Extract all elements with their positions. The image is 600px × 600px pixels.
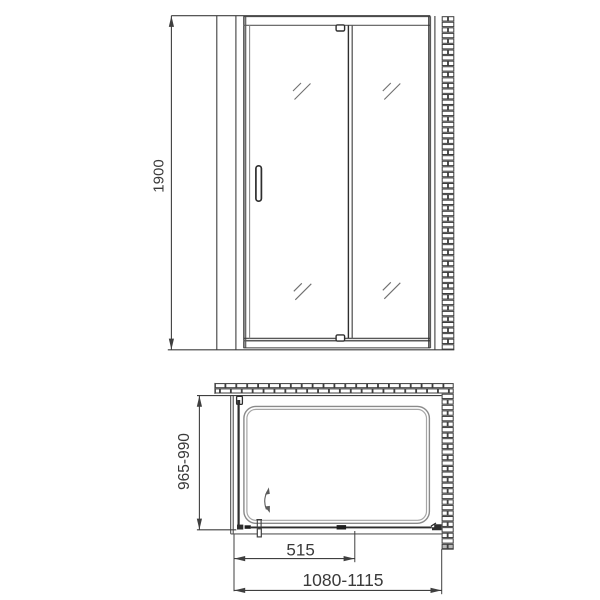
svg-text:965-990: 965-990: [176, 433, 193, 490]
svg-text:1900: 1900: [151, 159, 168, 192]
svg-text:1080-1115: 1080-1115: [302, 570, 383, 590]
svg-text:515: 515: [286, 541, 314, 560]
